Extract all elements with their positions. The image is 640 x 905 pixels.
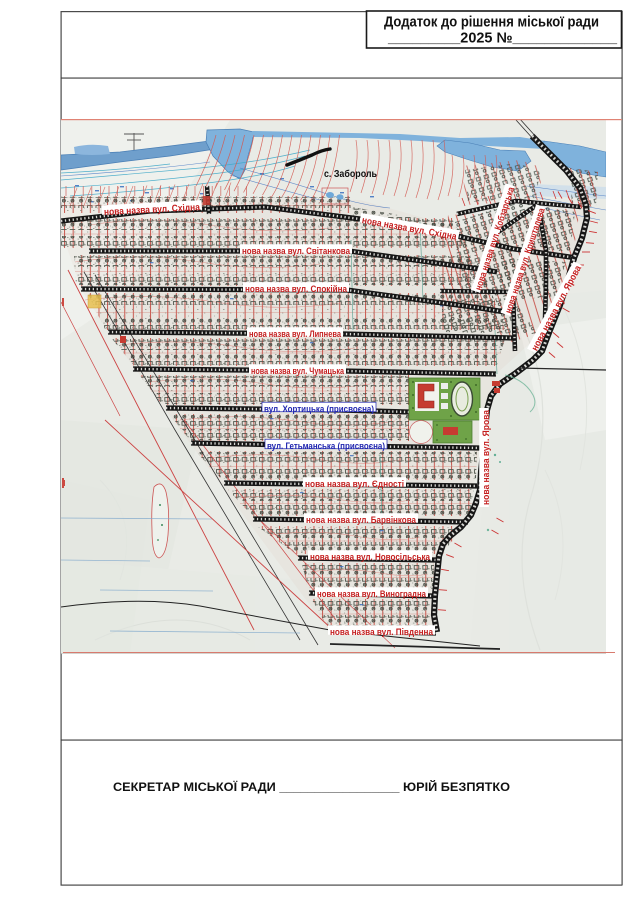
svg-text:вул. Хортицька (присвоєна): вул. Хортицька (присвоєна) xyxy=(264,404,374,415)
svg-text:нова назва вул. Новосільська: нова назва вул. Новосільська xyxy=(310,552,431,563)
svg-text:нова назва вул. Липнева: нова назва вул. Липнева xyxy=(249,329,342,340)
svg-text:вул. Гетьманська (присвоєна): вул. Гетьманська (присвоєна) xyxy=(267,441,385,452)
svg-text:нова назва вул. Барвінкова: нова назва вул. Барвінкова xyxy=(306,515,417,526)
svg-text:нова назва вул. Єдності: нова назва вул. Єдності xyxy=(305,479,404,490)
svg-text:_________2025 №_____________: _________2025 №_____________ xyxy=(387,31,618,47)
svg-text:СЕКРЕТАР МІСЬКОЇ РАДИ ________: СЕКРЕТАР МІСЬКОЇ РАДИ _________________ … xyxy=(113,779,510,794)
svg-text:нова назва вул. Південна: нова назва вул. Південна xyxy=(330,627,434,638)
svg-text:нова назва вул. Ярова: нова назва вул. Ярова xyxy=(481,409,492,505)
svg-text:Додаток до рішення міської ра: Додаток до рішення міської ради xyxy=(384,15,599,31)
svg-text:с. Забороль: с. Забороль xyxy=(324,168,377,180)
svg-text:нова назва вул. Виноградна: нова назва вул. Виноградна xyxy=(317,589,427,600)
svg-text:нова назва вул. Чумацька: нова назва вул. Чумацька xyxy=(251,366,344,377)
svg-text:нова назва вул. Світанкова: нова назва вул. Світанкова xyxy=(242,246,351,257)
svg-text:нова назва вул. Спокійна: нова назва вул. Спокійна xyxy=(245,284,348,295)
